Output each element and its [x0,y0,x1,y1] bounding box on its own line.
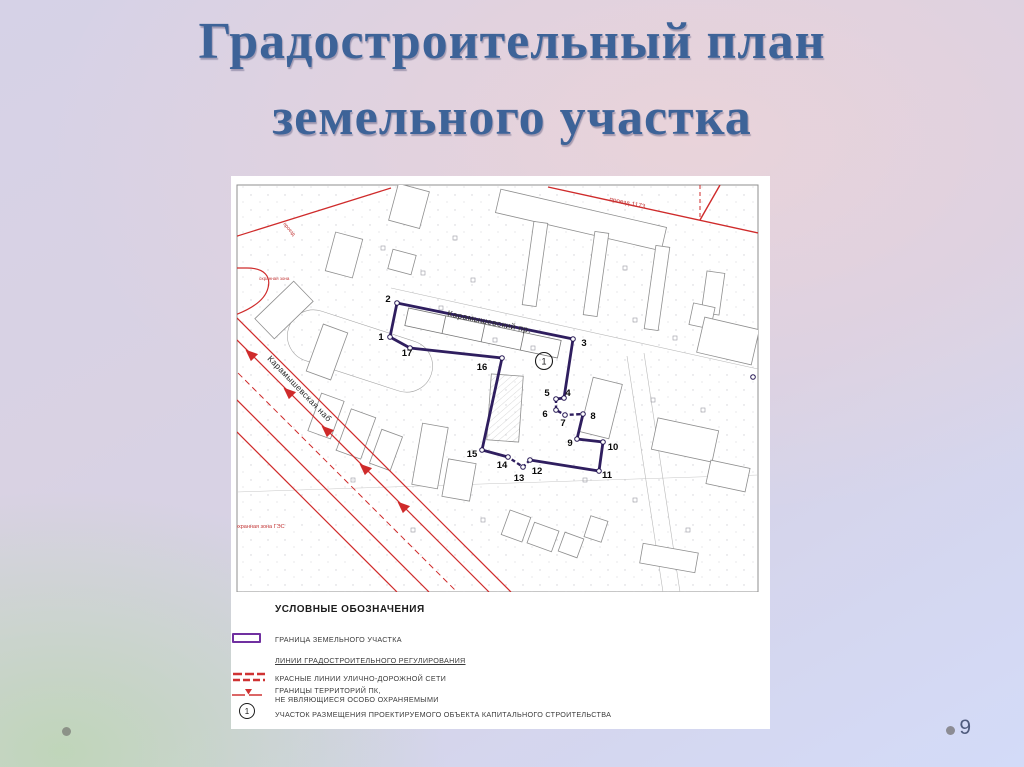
legend: УСЛОВНЫЕ ОБОЗНАЧЕНИЯ ГРАНИЦА ЗЕМЕЛЬНОГО … [231,592,770,729]
red-label-zone-small: охранная зона [259,276,290,281]
site-marker-number: 1 [541,357,546,367]
footer-right-dot [946,726,955,735]
legend-symbol-pk-boundary [232,688,266,698]
edge-point-label: 1 [759,366,765,377]
site-plan-svg: 1 2 3 4 5 6 7 8 9 10 11 12 13 14 [231,176,770,592]
red-label-zone-ges: охранная зона ГЭС [235,524,285,530]
point-label: 5 [544,388,550,399]
point-label: 2 [385,294,390,305]
point-label: 3 [581,338,586,349]
legend-title: УСЛОВНЫЕ ОБОЗНАЧЕНИЯ [275,604,425,615]
page-title: Градостроительный план земельного участк… [0,4,1024,156]
legend-symbol-red-lines [232,671,266,683]
legend-label: ГРАНИЦЫ ТЕРРИТОРИЙ ПК, НЕ ЯВЛЯЮЩИЕСЯ ОСО… [275,687,439,704]
point-label: 8 [590,411,595,422]
legend-label: УЧАСТОК РАЗМЕЩЕНИЯ ПРОЕКТИРУЕМОГО ОБЪЕКТ… [275,710,611,719]
plan-image-panel: 1 2 3 4 5 6 7 8 9 10 11 12 13 14 [231,176,770,729]
site-plan-map: 1 2 3 4 5 6 7 8 9 10 11 12 13 14 [231,176,770,592]
point-label: 9 [567,438,572,449]
presentation-slide: Градостроительный план земельного участк… [0,0,1024,767]
point-label: 16 [477,362,488,373]
title-line-2: земельного участка [0,80,1024,156]
point-label: 10 [608,442,619,453]
legend-symbol-site-marker: 1 [239,703,255,719]
legend-label: ЛИНИИ ГРАДОСТРОИТЕЛЬНОГО РЕГУЛИРОВАНИЯ [275,656,466,665]
legend-label-line-2: НЕ ЯВЛЯЮЩИЕСЯ ОСОБО ОХРАНЯЕМЫМИ [275,696,439,705]
point-label: 11 [602,470,613,481]
legend-label: КРАСНЫЕ ЛИНИИ УЛИЧНО-ДОРОЖНОЙ СЕТИ [275,674,446,683]
legend-label: ГРАНИЦА ЗЕМЕЛЬНОГО УЧАСТКА [275,635,402,644]
point-label: 1 [378,332,384,343]
point-label: 12 [532,466,543,477]
point-label: 13 [514,473,525,484]
point-label: 14 [497,460,508,471]
point-label: 17 [402,348,413,359]
legend-symbol-plot-boundary [232,633,261,643]
point-label: 15 [467,449,478,460]
title-line-1: Градостроительный план [0,4,1024,80]
footer-left-dot [62,727,71,736]
page-number: 9 [959,716,971,740]
point-label: 7 [560,418,565,429]
point-label: 4 [565,388,571,399]
point-label: 6 [542,409,547,420]
legend-marker-number: 1 [245,707,249,716]
